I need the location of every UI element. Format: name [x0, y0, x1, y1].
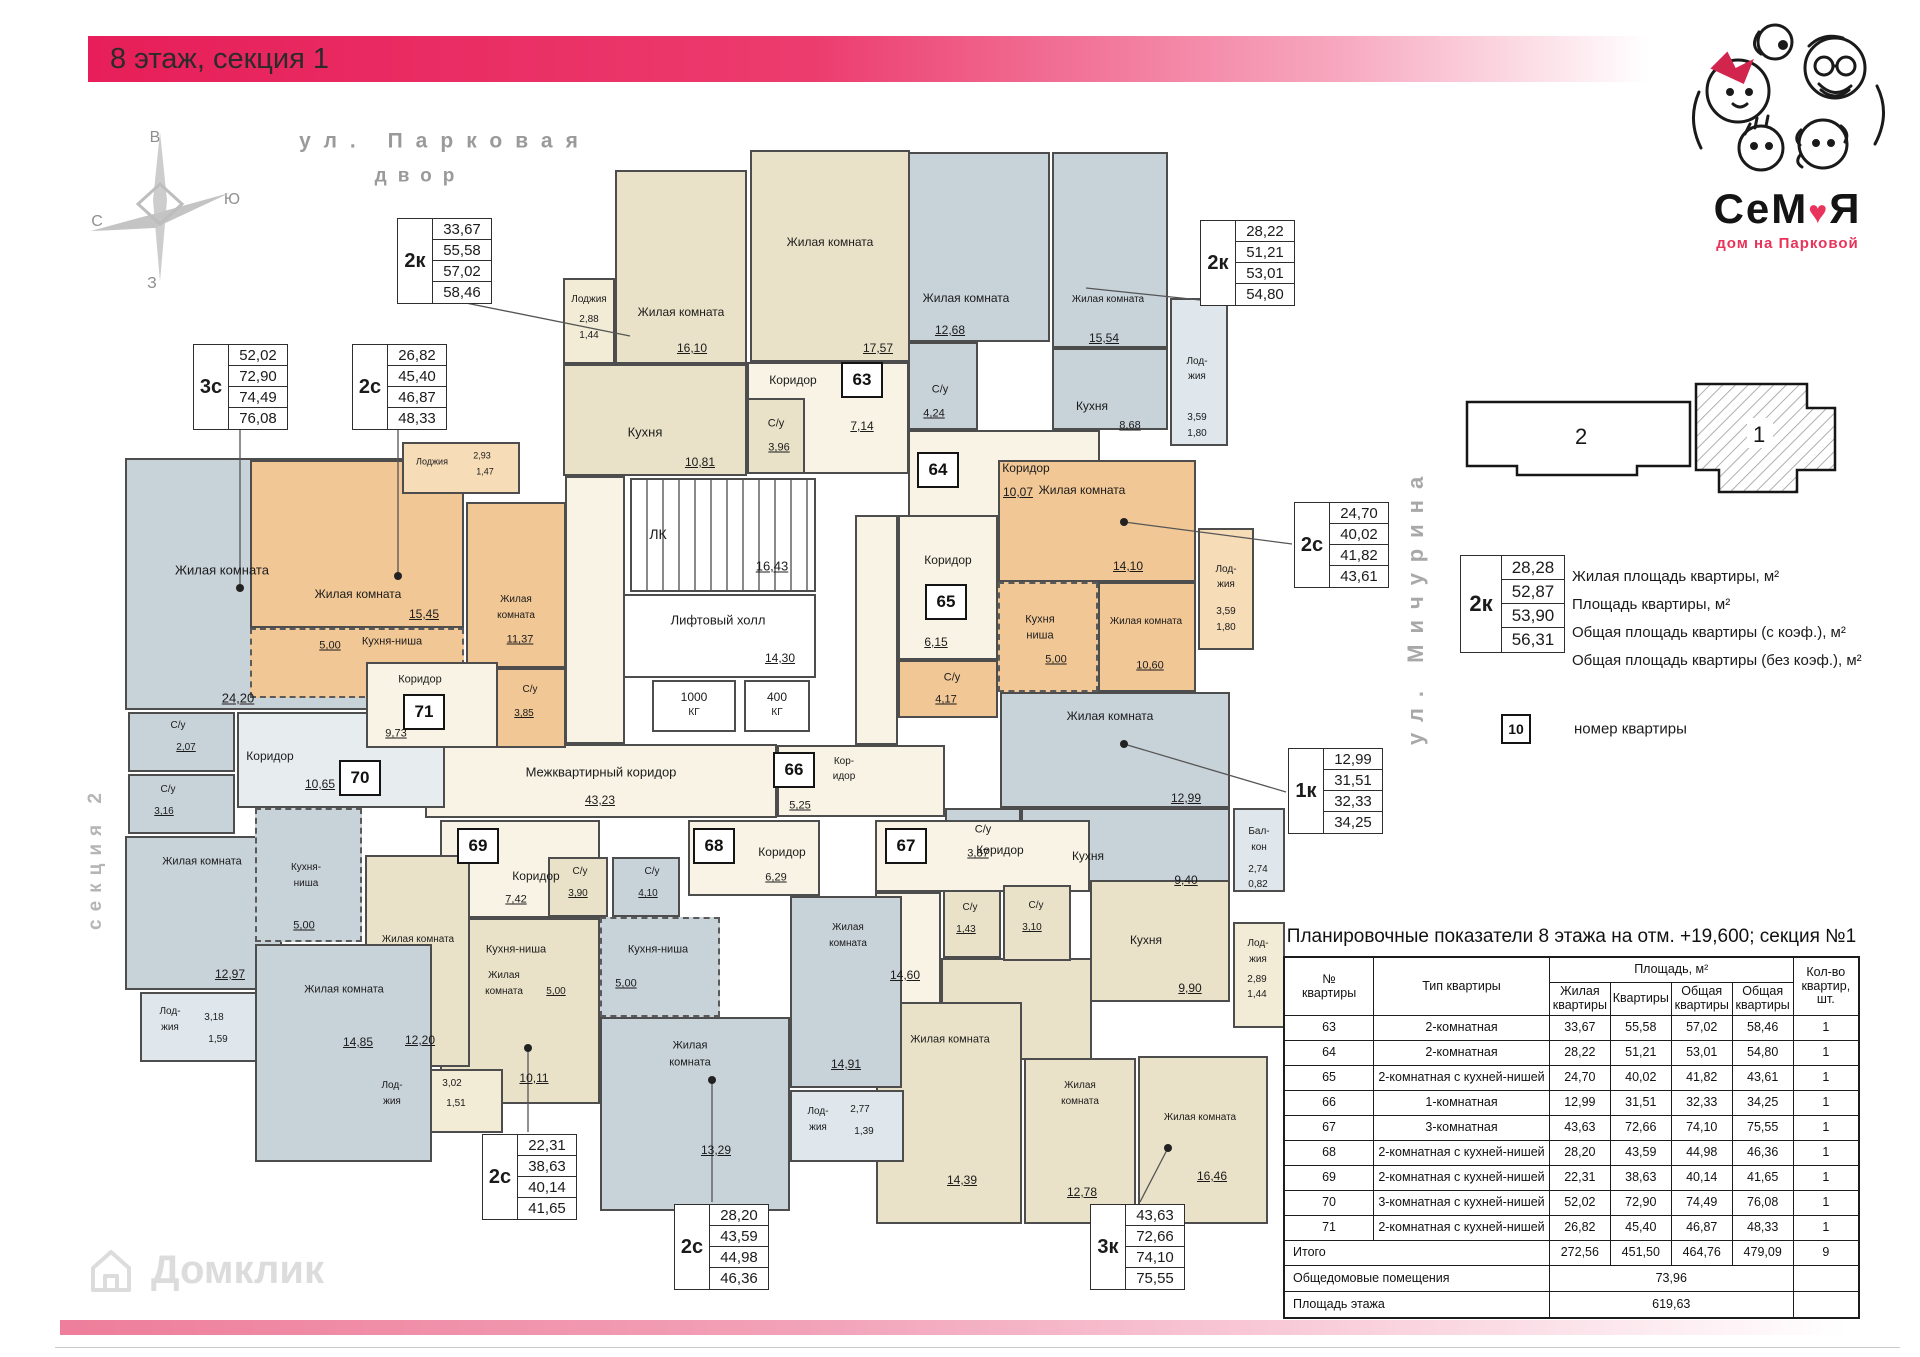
legend-area-value: 56,31 — [1502, 628, 1564, 652]
plan-label: 3,10 — [1022, 923, 1041, 933]
logo-subtitle: дом на Парковой — [1680, 235, 1895, 252]
plan-label: жия — [1249, 955, 1267, 965]
plan-label: Жилая комната — [304, 985, 383, 996]
plan-label: Коридор — [924, 554, 971, 566]
plan-label: 14,10 — [1113, 560, 1143, 572]
area-value: 75,55 — [1126, 1268, 1184, 1289]
plan-label: Жилая комната — [1067, 710, 1154, 722]
plan-label: Жилая комната — [162, 857, 241, 868]
plan-label: Коридор — [976, 844, 1023, 856]
plan-label: Жилая — [500, 595, 532, 605]
room-rect — [1052, 152, 1168, 348]
area-value: 74,49 — [229, 387, 287, 408]
plan-label: С/у — [768, 419, 785, 430]
apartment-number-box: 66 — [773, 752, 815, 788]
heart-icon: ♥ — [1808, 194, 1829, 230]
plan-label: Коридор — [512, 870, 559, 882]
area-value: 55,58 — [433, 240, 491, 261]
plan-label: 43,23 — [585, 794, 615, 806]
plan-label: Кухня-ниша — [486, 945, 546, 956]
legend-apartment-type: 2к — [1461, 556, 1501, 652]
plan-label: Кухня — [1025, 615, 1054, 626]
area-value: 43,59 — [710, 1226, 768, 1247]
plan-label: Жилая — [673, 1041, 708, 1052]
area-value: 72,66 — [1126, 1226, 1184, 1247]
table-row-footer: Общедомовые помещения73,96 — [1284, 1266, 1859, 1292]
plan-label: Лоджия — [571, 295, 606, 305]
plan-label: Кухня — [1072, 850, 1104, 862]
plan-label: 7,42 — [505, 895, 526, 906]
area-value: 51,21 — [1236, 242, 1294, 263]
plan-label: 16,43 — [756, 560, 789, 573]
plan-label: 3,02 — [442, 1079, 461, 1089]
plan-label: 1,43 — [956, 925, 975, 935]
room-rect — [998, 460, 1196, 582]
floor-title: 8 этаж, секция 1 — [110, 43, 329, 76]
family-doodle-icon — [1683, 12, 1893, 180]
plan-label: С/у — [975, 825, 992, 836]
plan-label: 14,30 — [765, 652, 795, 664]
plan-label: Лод- — [1247, 939, 1268, 949]
plan-label: 3,85 — [514, 709, 533, 719]
apartment-stat-block-71: 2с26,8245,4046,8748,33 — [352, 344, 447, 430]
plan-label: Бал- — [1248, 827, 1269, 837]
plan-label: 16,46 — [1197, 1170, 1227, 1182]
street-parkovaya-label: ул. Парковая — [299, 131, 591, 152]
plan-label: Жилая — [1064, 1081, 1096, 1091]
apartment-stat-block-69: 2с22,3138,6340,1441,65 — [482, 1134, 577, 1220]
table-row-footer: Площадь этажа619,63 — [1284, 1292, 1859, 1319]
semya-logo: СеМ♥Я дом на Парковой — [1680, 12, 1895, 252]
plan-label: 12,78 — [1067, 1186, 1097, 1198]
plan-label: жия — [161, 1023, 179, 1033]
table-row-apt-66: 661-комнатная12,9931,5132,3334,251 — [1284, 1091, 1859, 1116]
apartment-stat-block-70: 3с52,0272,9074,4976,08 — [193, 344, 288, 430]
room-rect — [565, 476, 625, 744]
area-value: 28,22 — [1236, 221, 1294, 242]
plan-label: 5,00 — [293, 921, 314, 932]
plan-label: 2,77 — [850, 1105, 869, 1115]
street-michurina-label: ул. Мичурина — [1405, 295, 1427, 745]
plan-label: 15,45 — [409, 608, 439, 620]
room-rect — [622, 594, 816, 678]
legend-area-value: 53,90 — [1502, 604, 1564, 628]
area-value: 52,02 — [229, 345, 287, 366]
compass-label-right: Ю — [224, 192, 240, 208]
plan-label: Жилая комната — [923, 292, 1010, 304]
area-value: 22,31 — [518, 1135, 576, 1156]
apartment-stat-block-66: 1к12,9931,5132,3334,25 — [1288, 748, 1383, 834]
compass-label-top: В — [150, 130, 161, 146]
plan-label: 8,68 — [1119, 421, 1140, 432]
plan-label: 10,81 — [685, 456, 715, 468]
plan-label: 0,82 — [1248, 880, 1267, 890]
legend-apartment-number-box: 10 — [1501, 714, 1531, 744]
plan-label: Лод- — [1215, 565, 1236, 575]
table-row-apt-71: 712-комнатная с кухней-нишей26,8245,4046… — [1284, 1216, 1859, 1241]
plan-label: 24,20 — [222, 692, 255, 705]
area-value: 74,10 — [1126, 1247, 1184, 1268]
room-rect — [744, 680, 810, 732]
legend-description: Общая площадь квартиры (без коэф.), м² — [1572, 647, 1862, 675]
plan-label: 7,14 — [850, 420, 873, 432]
plan-label: жия — [1188, 372, 1206, 382]
plan-label: комната — [497, 611, 535, 621]
plan-label: Жилая комната — [1039, 484, 1126, 496]
plan-label: 4,10 — [638, 889, 657, 899]
area-value: 41,65 — [518, 1198, 576, 1219]
room-rect — [402, 442, 520, 494]
apartment-type-label: 2к — [398, 219, 432, 303]
room-rect — [615, 170, 747, 364]
plan-label: 9,90 — [1178, 982, 1201, 994]
apartment-stat-block-64: 2к28,2251,2153,0154,80 — [1200, 220, 1295, 306]
table-row-apt-65: 652-комнатная с кухней-нишей24,7040,0241… — [1284, 1066, 1859, 1091]
apartment-type-label: 3с — [194, 345, 228, 429]
plan-label: 14,91 — [831, 1058, 861, 1070]
plan-label: Лифтовый холл — [671, 614, 766, 627]
plan-label: 4,17 — [935, 695, 956, 706]
plan-label: 14,60 — [890, 969, 920, 981]
plan-label: 12,97 — [215, 968, 245, 980]
plan-label: С/у — [573, 867, 588, 877]
table-row-apt-64: 642-комнатная28,2251,2153,0154,801 — [1284, 1041, 1859, 1066]
plan-label: жия — [383, 1097, 401, 1107]
plan-label: 1,47 — [476, 468, 494, 477]
table-row-total: Итого272,56451,50464,76479,099 — [1284, 1241, 1859, 1266]
area-value: 40,14 — [518, 1177, 576, 1198]
legend-description: Общая площадь квартиры (с коэф.), м² — [1572, 619, 1862, 647]
plan-label: 14,39 — [947, 1174, 977, 1186]
table-row-apt-69: 692-комнатная с кухней-нишей22,3138,6340… — [1284, 1166, 1859, 1191]
area-value: 34,25 — [1324, 812, 1382, 833]
plan-label: ниша — [1026, 631, 1053, 642]
plan-label: С/у — [171, 721, 186, 731]
plan-label: 1,59 — [208, 1035, 227, 1045]
plan-label: 6,15 — [924, 636, 947, 648]
plan-label: КГ — [771, 708, 782, 718]
legend-apartment-number-label: номер квартиры — [1574, 722, 1687, 737]
plan-label: комната — [669, 1058, 711, 1069]
plan-label: 2,88 — [579, 315, 598, 325]
room-rect — [140, 992, 257, 1062]
plan-label: 4,24 — [923, 409, 944, 420]
plan-label: Кухня- — [291, 863, 321, 873]
room-rect — [898, 660, 998, 718]
plan-label: 3,59 — [1216, 607, 1235, 617]
table-row-apt-68: 682-комнатная с кухней-нишей28,2043,5944… — [1284, 1141, 1859, 1166]
area-value: 43,63 — [1126, 1205, 1184, 1226]
plan-label: Коридор — [246, 750, 293, 762]
apartment-stat-block-67: 3к43,6372,6674,1075,55 — [1090, 1204, 1185, 1290]
plan-label: 11,37 — [507, 635, 534, 646]
table-row-apt-63: 632-комнатная33,6755,5857,0258,461 — [1284, 1016, 1859, 1041]
plan-label: Кухня-ниша — [628, 945, 688, 956]
table-title: Планировочные показатели 8 этажа на отм.… — [1283, 926, 1860, 948]
apartment-type-label: 2с — [675, 1205, 709, 1289]
room-rect — [790, 1090, 904, 1162]
plan-label: 12,99 — [1171, 792, 1201, 804]
plan-label: жия — [809, 1123, 827, 1133]
room-rect — [600, 917, 720, 1017]
plan-label: С/у — [963, 903, 978, 913]
bottom-accent-bar — [60, 1320, 1920, 1335]
plan-label: 3,90 — [568, 889, 587, 899]
apartment-number-box: 63 — [841, 362, 883, 398]
plan-label: Жилая комната — [1110, 617, 1182, 627]
plan-label: 1,80 — [1216, 623, 1235, 633]
plan-label: Лод- — [159, 1007, 180, 1017]
apartment-stat-block-63: 2к33,6755,5857,0258,46 — [397, 218, 492, 304]
plan-label: 16,10 — [677, 342, 707, 354]
apartment-type-label: 2с — [1295, 503, 1329, 587]
apartment-number-box: 64 — [917, 452, 959, 488]
plan-label: С/у — [161, 785, 176, 795]
plan-label: 12,20 — [405, 1034, 435, 1046]
area-value: 40,02 — [1330, 524, 1388, 545]
plan-label: 1,44 — [1247, 990, 1266, 1000]
svg-text:1: 1 — [1753, 422, 1765, 447]
apartment-number-box: 71 — [403, 694, 445, 730]
area-value: 46,36 — [710, 1268, 768, 1289]
area-value: 46,87 — [388, 387, 446, 408]
plan-label: 10,65 — [305, 778, 335, 790]
plan-label: 1000 — [681, 691, 708, 703]
area-value: 54,80 — [1236, 284, 1294, 305]
plan-label: комната — [485, 987, 523, 997]
room-rect — [128, 774, 235, 834]
legend-area-value: 28,28 — [1502, 556, 1564, 580]
plan-label: Жилая комната — [1164, 1113, 1236, 1123]
plan-label: Жилая комната — [787, 236, 874, 248]
plan-label: 3,59 — [1187, 413, 1206, 423]
apartment-type-label: 2к — [1201, 221, 1235, 305]
plan-label: 6,29 — [765, 873, 786, 884]
apartment-type-label: 2с — [483, 1135, 517, 1219]
plan-label: Коридор — [1002, 462, 1049, 474]
plan-label: Жилая комната — [638, 306, 725, 318]
plan-label: Межквартирный коридор — [526, 766, 677, 779]
plan-label: 5,00 — [615, 979, 636, 990]
apartment-stat-block-68: 2с28,2043,5944,9846,36 — [674, 1204, 769, 1290]
plan-label: 5,25 — [789, 801, 810, 812]
plan-label: Лод- — [807, 1107, 828, 1117]
plan-label: 2,07 — [176, 743, 195, 753]
compass-label-left: С — [91, 214, 103, 230]
legend-descriptions: Жилая площадь квартиры, м²Площадь кварти… — [1572, 563, 1862, 675]
room-rect — [652, 680, 736, 732]
area-value: 38,63 — [518, 1156, 576, 1177]
area-value: 28,20 — [710, 1205, 768, 1226]
plan-label: 3,18 — [204, 1013, 223, 1023]
plan-label: Кор- — [834, 757, 854, 767]
area-value: 45,40 — [388, 366, 446, 387]
apartment-stat-block-65: 2с24,7040,0241,8243,61 — [1294, 502, 1389, 588]
plan-label: Жилая комната — [315, 588, 402, 600]
table-row-apt-70: 703-комнатная с кухней-нишей52,0272,9074… — [1284, 1191, 1859, 1216]
plan-label: 9,73 — [385, 729, 406, 740]
plan-label: Лод- — [1186, 357, 1207, 367]
room-rect — [1052, 348, 1168, 430]
apartment-type-label: 2с — [353, 345, 387, 429]
plan-label: 1,51 — [446, 1099, 465, 1109]
plan-label: Кухня — [628, 426, 663, 439]
apartment-number-box: 67 — [885, 828, 927, 864]
plan-label: 12,68 — [935, 324, 965, 336]
area-value: 76,08 — [229, 408, 287, 429]
house-icon — [85, 1244, 137, 1296]
plan-label: Коридор — [769, 374, 816, 386]
room-rect — [855, 515, 898, 745]
area-value: 48,33 — [388, 408, 446, 429]
plan-label: комната — [829, 939, 867, 949]
plan-label: Жилая комната — [382, 935, 454, 945]
apartment-number-box: 68 — [693, 828, 735, 864]
area-value: 41,82 — [1330, 545, 1388, 566]
plan-label: 15,54 — [1089, 332, 1119, 344]
room-rect — [1138, 1056, 1268, 1224]
table-row-apt-67: 673-комнатная43,6372,6674,1075,551 — [1284, 1116, 1859, 1141]
apartment-number-box: 70 — [339, 760, 381, 796]
plan-label: жия — [1217, 580, 1235, 590]
plan-label: 400 — [767, 691, 787, 703]
plan-label: кон — [1251, 843, 1267, 853]
area-value: 24,70 — [1330, 503, 1388, 524]
area-value: 43,61 — [1330, 566, 1388, 587]
apartment-number-box: 69 — [457, 828, 499, 864]
plan-label: Лод- — [381, 1081, 402, 1091]
plan-label: Жилая — [488, 971, 520, 981]
floor-title-bar: 8 этаж, секция 1 — [88, 36, 1698, 82]
plan-label: Лоджия — [416, 458, 448, 467]
section-2-label: секция 2 — [86, 640, 105, 930]
area-value: 57,02 — [433, 261, 491, 282]
area-value: 53,01 — [1236, 263, 1294, 284]
plan-label: 5,00 — [319, 641, 340, 652]
legend-description: Жилая площадь квартиры, м² — [1572, 563, 1862, 591]
room-rect — [563, 364, 747, 476]
bottom-divider-line — [55, 1347, 1900, 1348]
plan-label: ЛК — [649, 527, 666, 541]
plan-label: С/у — [1029, 901, 1044, 911]
area-value: 44,98 — [710, 1247, 768, 1268]
legend-area-block: 2к 28,2852,8753,9056,31 — [1460, 555, 1565, 653]
compass-label-bottom: З — [147, 276, 157, 292]
courtyard-label: двор — [375, 167, 466, 186]
plan-label: 10,07 — [1003, 486, 1033, 498]
plan-label: С/у — [944, 673, 961, 684]
apartment-type-label: 1к — [1289, 749, 1323, 833]
plan-label: 1,39 — [854, 1127, 873, 1137]
plan-label: 13,29 — [701, 1144, 731, 1156]
plan-label: 1,44 — [579, 331, 598, 341]
plan-label: Жилая комната — [1072, 295, 1144, 305]
room-rect — [908, 152, 1050, 342]
plan-label: ниша — [294, 879, 319, 889]
area-value: 72,90 — [229, 366, 287, 387]
logo-wordmark: СеМ♥Я — [1680, 185, 1895, 233]
legend-area-value: 52,87 — [1502, 580, 1564, 604]
domclick-watermark: Домклик — [85, 1244, 324, 1296]
legend-description: Площадь квартиры, м² — [1572, 591, 1862, 619]
plan-label: Жилая комната — [910, 1035, 989, 1046]
plan-label: 2,89 — [1247, 975, 1266, 985]
plan-label: С/у — [932, 385, 949, 396]
room-rect — [750, 150, 910, 362]
svg-text:2: 2 — [1575, 424, 1587, 449]
watermark-text: Домклик — [151, 1248, 324, 1293]
plan-label: 2,93 — [473, 452, 491, 461]
plan-label: Коридор — [758, 846, 805, 858]
plan-label: 3,96 — [768, 443, 789, 454]
plan-label: 10,60 — [1136, 661, 1164, 672]
plan-label: С/у — [645, 867, 660, 877]
plan-label: Кухня — [1130, 934, 1162, 946]
apartment-number-box: 65 — [925, 584, 967, 620]
plan-label: Кухня — [1076, 400, 1108, 412]
room-rect — [1098, 582, 1196, 692]
plan-label: 5,00 — [546, 987, 565, 997]
plan-label: Коридор — [398, 675, 441, 686]
plan-label: 10,11 — [519, 1072, 548, 1084]
plan-label: идор — [833, 772, 856, 782]
area-value: 12,99 — [1324, 749, 1382, 770]
plan-label: Жилая комната — [175, 564, 269, 577]
area-value: 32,33 — [1324, 791, 1382, 812]
plan-label: С/у — [523, 685, 538, 695]
apartment-type-label: 3к — [1091, 1205, 1125, 1289]
plan-label: комната — [1061, 1097, 1099, 1107]
room-rect — [255, 944, 432, 1162]
plan-label: 14,85 — [343, 1036, 373, 1048]
plan-label: 3,16 — [154, 807, 173, 817]
plan-label: 17,57 — [863, 342, 893, 354]
plan-label: КГ — [688, 708, 699, 718]
area-value: 26,82 — [388, 345, 446, 366]
area-value: 58,46 — [433, 282, 491, 303]
plan-label: Кухня-ниша — [362, 637, 422, 648]
area-value: 33,67 — [433, 219, 491, 240]
plan-label: 1,80 — [1187, 429, 1206, 439]
area-value: 31,51 — [1324, 770, 1382, 791]
plan-metrics-table: Планировочные показатели 8 этажа на отм.… — [1283, 926, 1860, 1319]
room-rect — [747, 398, 805, 474]
plan-label: Жилая — [832, 923, 864, 933]
plan-label: 9,40 — [1174, 874, 1197, 886]
plan-label: 5,00 — [1045, 655, 1066, 666]
plan-label: 2,74 — [1248, 865, 1267, 875]
